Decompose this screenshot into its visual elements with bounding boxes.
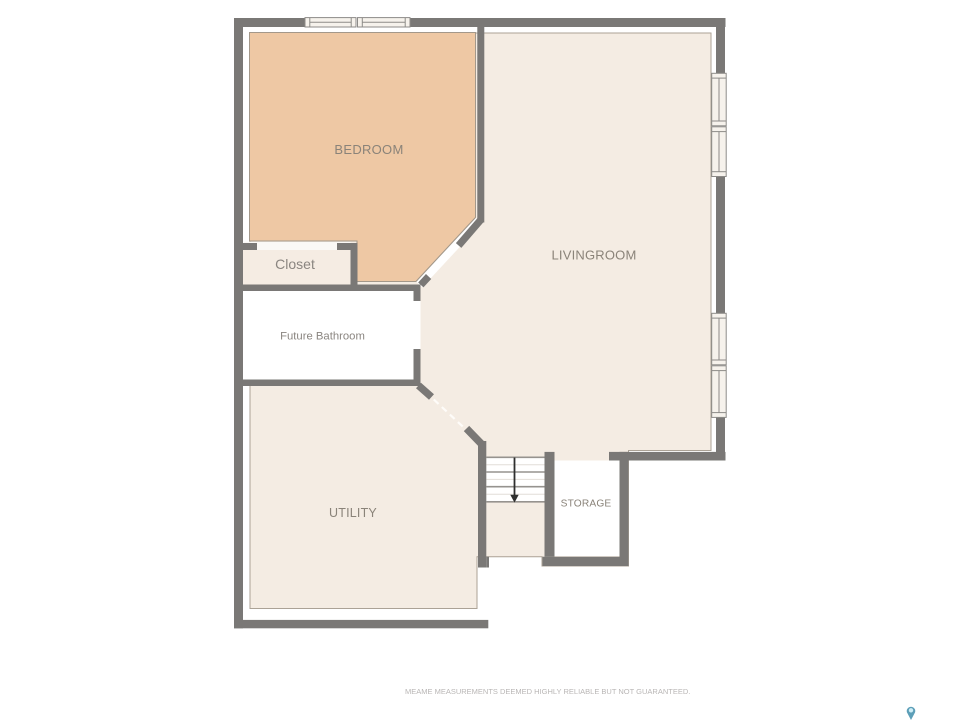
svg-text:MEAME MEASUREMENTS DEEMED HIGH: MEAME MEASUREMENTS DEEMED HIGHLY RELIABL…	[405, 687, 690, 696]
svg-text:Future Bathroom: Future Bathroom	[280, 331, 365, 343]
svg-text:Closet: Closet	[275, 256, 315, 272]
svg-text:STORAGE: STORAGE	[561, 499, 612, 510]
svg-text:UTILITY: UTILITY	[329, 506, 377, 520]
svg-text:LIVINGROOM: LIVINGROOM	[551, 248, 636, 263]
svg-text:BEDROOM: BEDROOM	[334, 142, 403, 157]
